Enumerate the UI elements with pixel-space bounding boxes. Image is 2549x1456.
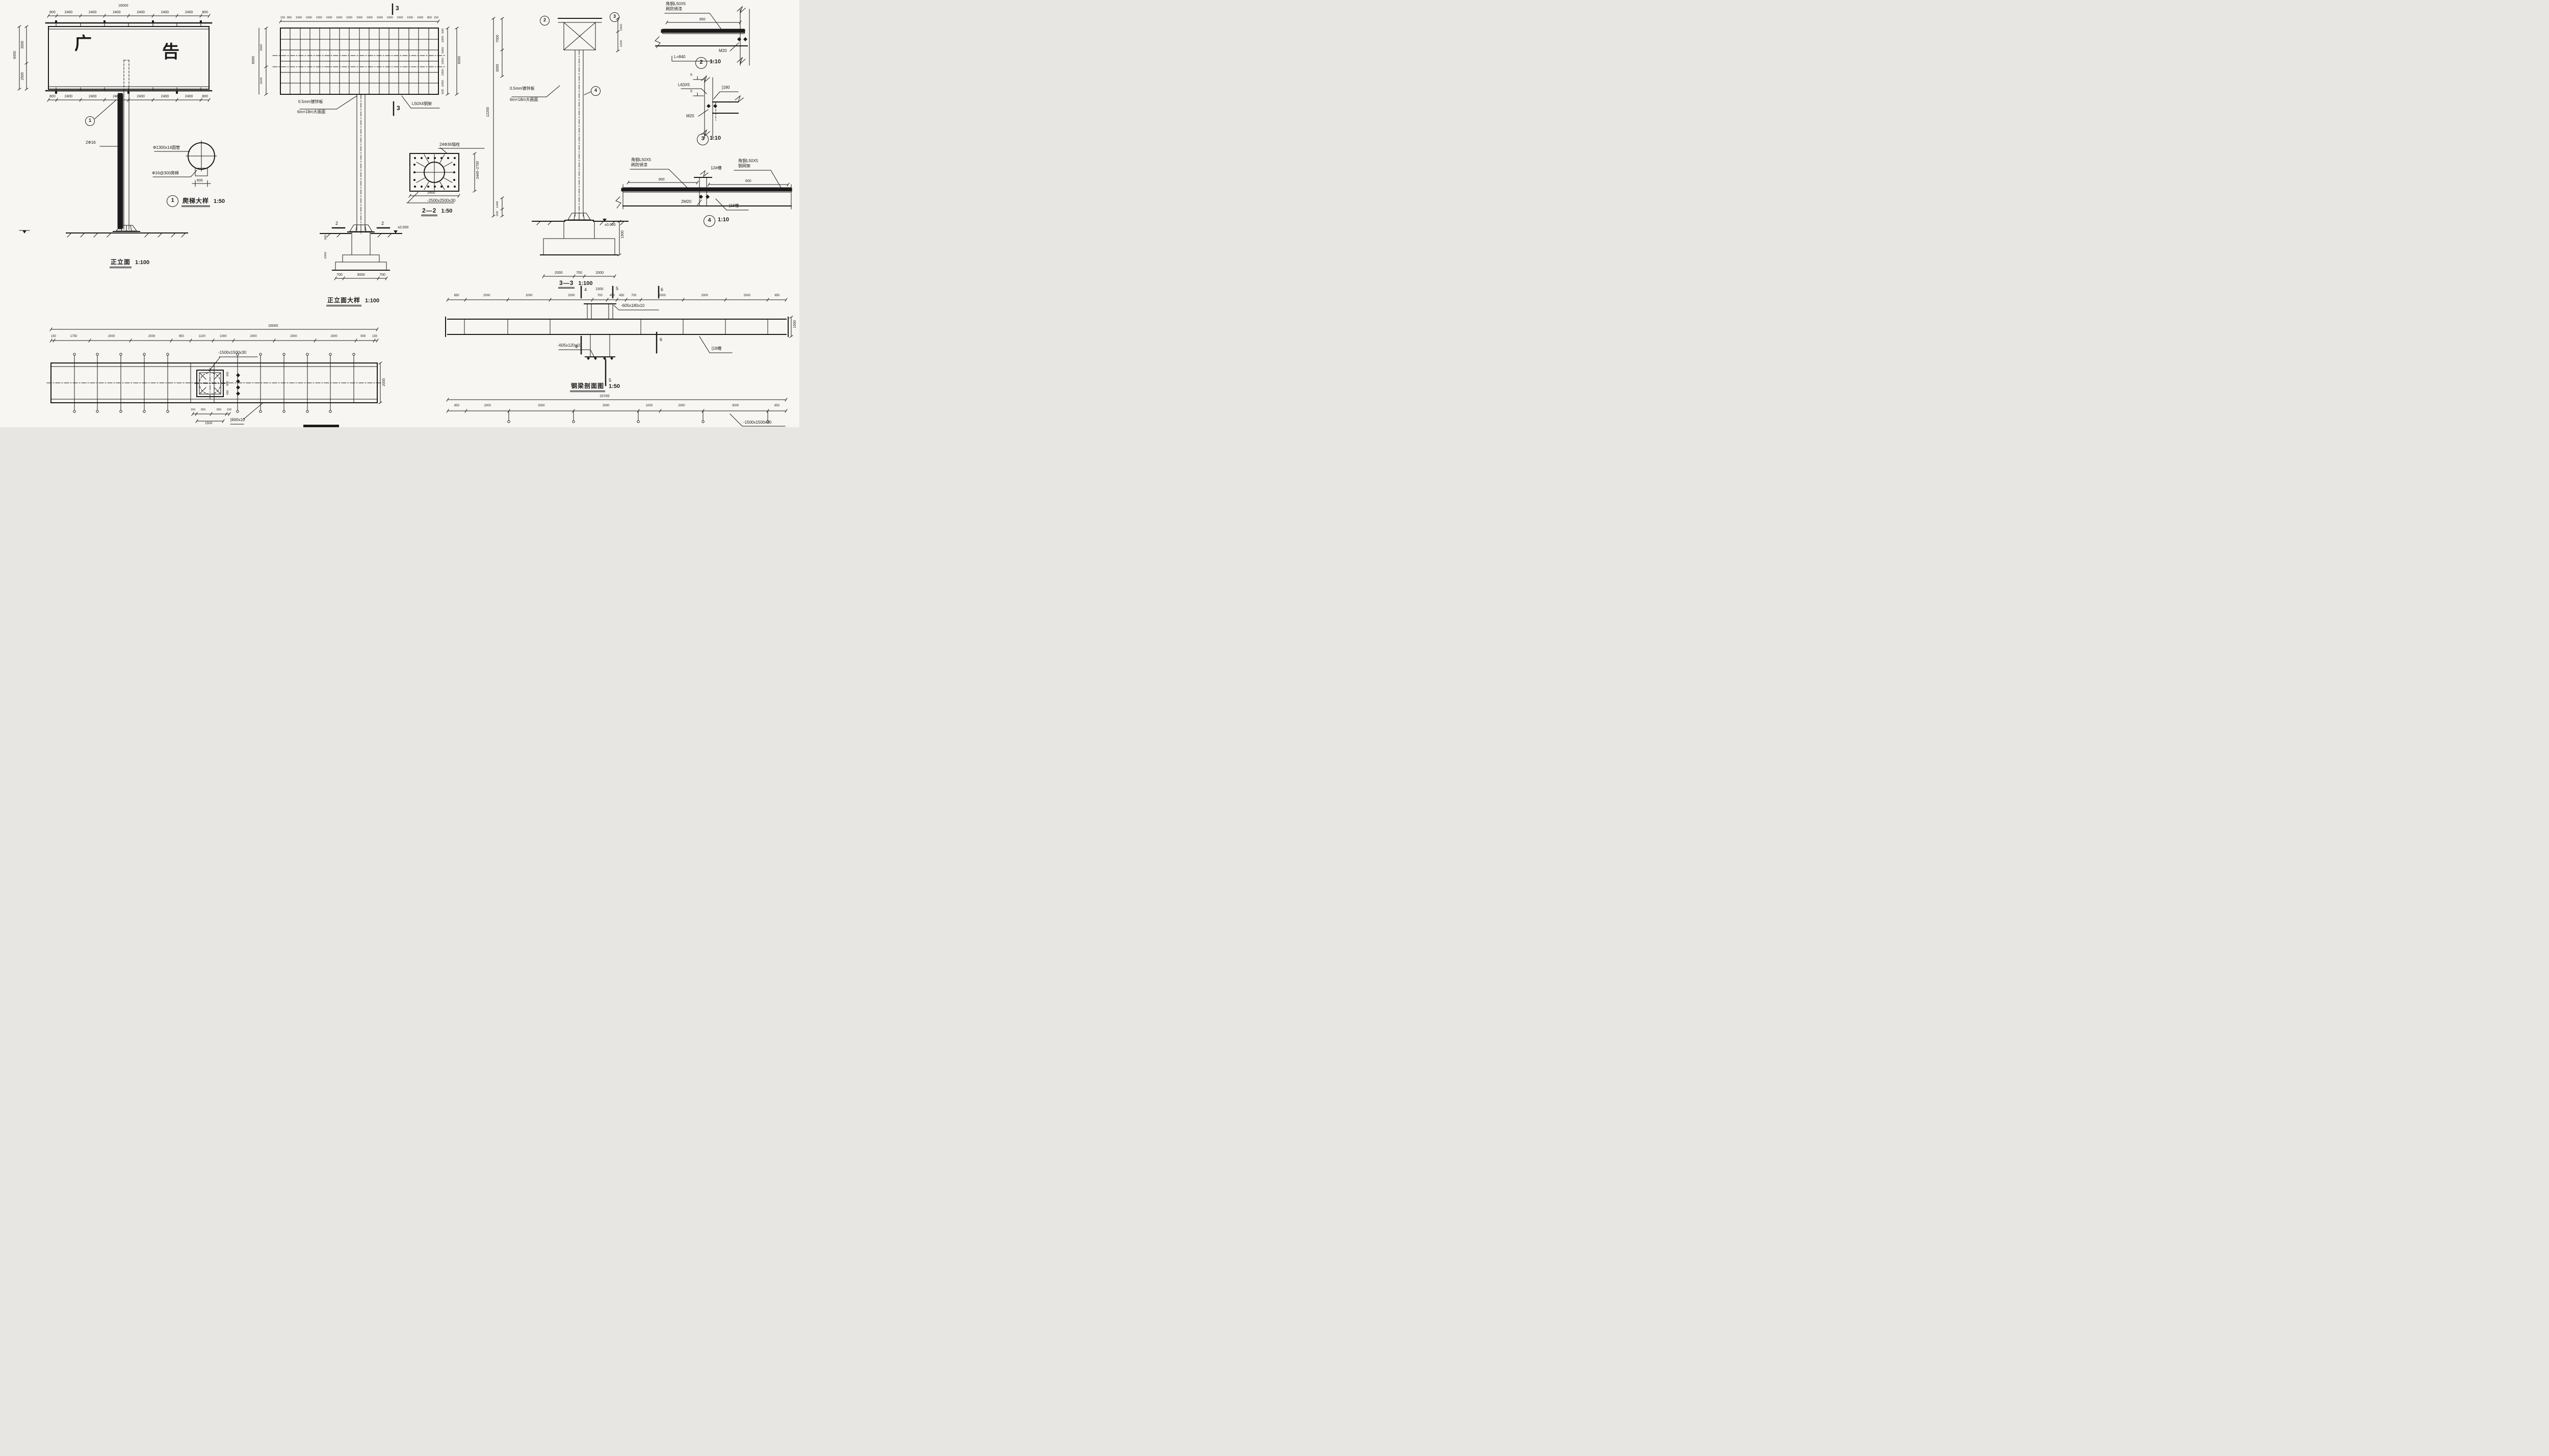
- beam-marker-6-bottom: 6: [660, 337, 662, 343]
- plan-side-dims: 450600450: [226, 370, 229, 397]
- callout-3-bubble: 3: [610, 12, 619, 22]
- beam-end-dim: 1500: [793, 320, 797, 328]
- front-dims-left: 35002500: [21, 27, 24, 89]
- front-large-dims-top: 1508501000100010001000100010001000100010…: [280, 16, 438, 19]
- detail4-splice-label: 12#槽: [711, 166, 721, 171]
- plan-right-dim: 2000: [382, 378, 386, 386]
- base-plate-label: -2500x2500x30: [427, 199, 455, 203]
- ladder-width-dim: 600: [197, 179, 203, 183]
- plan-under-dims: 150650650150: [191, 408, 231, 411]
- plan-under-total: 1500: [205, 422, 212, 425]
- detail3-channel-label: [180: [722, 86, 730, 90]
- ladder-pipe-label: Φ1300x14圆管: [153, 146, 180, 150]
- detail4-right-label-1: 角钢L50X5: [738, 159, 758, 164]
- section33-dims-lower: 1500500: [496, 198, 499, 216]
- detail3-callout-bubble: 3: [697, 134, 709, 145]
- detail2-label-1: 角钢L50X5: [666, 2, 686, 7]
- angle-steel-label: L50X4钢架: [412, 102, 432, 107]
- detail3-angle-label: L63X5: [678, 83, 690, 88]
- detail-4-lines: [616, 169, 791, 210]
- detail2-callout-bubble: 2: [695, 57, 707, 69]
- foundation-depth-dims: 5002000: [324, 233, 327, 270]
- section33-dims-left-inner: 70003000: [496, 18, 500, 76]
- beam-marker-5-top: 5: [616, 287, 618, 292]
- front-large-total-left: 6000: [252, 56, 255, 64]
- ladder-title: 爬梯大样 1:50: [181, 196, 225, 207]
- billboard-char-1: 广: [74, 35, 92, 54]
- section33-title: 3—3 1:100: [558, 279, 593, 289]
- front-large-dims-right: 50010001000100010001000500: [441, 28, 445, 94]
- detail3-scale: 1:10: [710, 135, 721, 141]
- panel-material-label-2: 6m×18m大画面: [297, 110, 325, 115]
- plan-plate-label: -1500x1500x30: [218, 351, 246, 355]
- detail2-scale: 1:10: [710, 59, 721, 65]
- chain2-plate-label: -1500x1500x30: [743, 421, 771, 425]
- section-3-3-lines: [492, 17, 628, 278]
- detail3-weld-1: 5: [690, 73, 692, 77]
- detail4-callout-bubble: 4: [704, 215, 715, 227]
- beam-section-lines: [446, 287, 793, 385]
- section33-dims-right: 15001200: [620, 18, 623, 51]
- section33-found-dims: 20007002000: [543, 271, 615, 275]
- detail2-label-2: 刷防锈漆: [666, 7, 682, 12]
- detail4-dim-left: 800: [659, 178, 665, 182]
- front-total-left: 6000: [13, 51, 17, 59]
- chain2-dims: 850200030003000100020003000850: [448, 404, 786, 407]
- chain2-total: 15700: [600, 395, 609, 399]
- detail2-length-label: L=840: [674, 55, 685, 60]
- plan-channel-label: [600x10: [230, 418, 245, 423]
- cut-marker-2-left: 2: [335, 221, 338, 226]
- drawing-linework: [0, 0, 799, 427]
- ladder-rung-label: Φ16@300爬梯: [152, 171, 179, 176]
- cut-marker-2-right: 2: [381, 221, 384, 226]
- section-marker-3-top: 3: [396, 5, 399, 12]
- beam-plate-label-1: -605x180x10: [621, 304, 644, 308]
- front-callout-bubble: 1: [85, 116, 95, 126]
- detail4-channel-label: [18槽: [729, 204, 739, 209]
- front-title: 正立面 1:100: [110, 257, 149, 268]
- level-label-33: ±0.000: [605, 223, 615, 227]
- flange-title: 2—2 1:50: [421, 207, 452, 216]
- front-dims-bottom: 800240024002400240024002400800: [48, 95, 209, 98]
- beam-marker-6-top: 6: [661, 288, 663, 293]
- detail4-dim-right: 600: [745, 179, 751, 184]
- section33-depth-dim: 1500: [621, 230, 625, 239]
- blueprint-canvas: 16000 800240024002400240024002400800 800…: [0, 0, 799, 427]
- anchor-bolt-label: 24Φ36锚栓: [439, 143, 460, 147]
- section33-panel-label-1: 0.5mm镀锌板: [510, 87, 534, 91]
- beam-marker-4-top: 4: [584, 288, 587, 293]
- beam-center-dim: 1500: [595, 288, 604, 292]
- flange-side-dim: 2440~2700: [476, 161, 480, 179]
- front-large-total-right: 6000: [458, 56, 461, 64]
- front-large-title: 正立面大样 1:100: [326, 296, 379, 306]
- section-marker-3-bottom: 3: [397, 105, 400, 112]
- front-large-lines: [259, 4, 458, 280]
- beam-dims-top: 8502000200020007004504507002000200020008…: [448, 294, 786, 297]
- callout-4-bubble: 4: [591, 86, 601, 96]
- foundation-dims-mid: 7003000700: [335, 273, 386, 277]
- detail-2-lines: [655, 7, 749, 65]
- beam-title: 钢梁剖面图 1:50: [570, 381, 620, 392]
- front-total-top: 16000: [118, 4, 128, 8]
- detail4-scale: 1:10: [718, 217, 729, 223]
- billboard-char-2: 告: [162, 43, 179, 62]
- beam-channel-label: [18槽: [712, 347, 721, 351]
- flange-detail-lines: [407, 148, 484, 203]
- front-large-dims-left: 35002500: [260, 28, 263, 94]
- section33-panel-label-2: 6m×18m大画面: [510, 98, 538, 102]
- plan-view-lines: [47, 328, 382, 427]
- callout-2-bubble: 2: [540, 16, 550, 25]
- ladder-callout-bubble: 1: [167, 195, 178, 207]
- detail4-right-label-2: 钢网架: [738, 164, 750, 169]
- beam-plate-label-2: -605x120x10: [558, 344, 581, 348]
- plan-dims-top: 1501750200020009501100100020002000200090…: [51, 335, 377, 338]
- detail3-bolt-label: M20: [686, 114, 694, 119]
- front-rebar-label: 2Φ16: [86, 141, 96, 145]
- front-dims-top: 800240024002400240024002400800: [48, 11, 209, 14]
- panel-material-label-1: 0.5mm镀锌板: [298, 100, 323, 105]
- section33-dim-left-outer: 12200: [486, 107, 490, 117]
- detail4-bolt-label: 2M20: [681, 200, 691, 204]
- bottom-chain-lines: [447, 398, 787, 426]
- detail2-dim: 850: [699, 18, 706, 22]
- detail4-left-label-1: 角钢L50X5: [631, 158, 651, 163]
- detail4-left-label-2: 刷防锈漆: [631, 163, 647, 168]
- detail-3-lines: [681, 76, 743, 139]
- plan-total: 16000: [268, 324, 278, 328]
- anchor-circle-dim: 2400: [427, 191, 435, 195]
- detail2-bolt-label: M20: [719, 49, 727, 54]
- detail3-weld-2: 5: [690, 90, 692, 94]
- level-label-mid: ±0.000: [398, 226, 408, 230]
